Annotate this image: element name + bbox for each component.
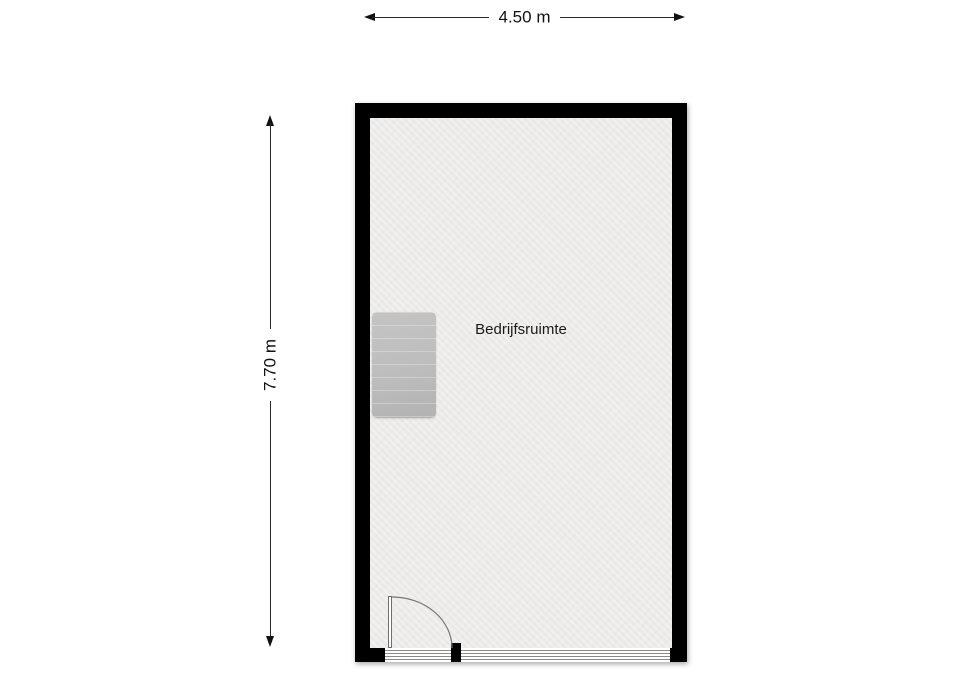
- arrow-right-icon: [674, 13, 685, 21]
- window-mullion-post: [451, 643, 461, 662]
- height-dimension-label: 7.70 m: [261, 329, 280, 401]
- room-label: Bedrijfsruimte: [370, 321, 672, 338]
- arrow-down-icon: [266, 636, 274, 647]
- width-dimension: 4.50 m: [364, 10, 685, 25]
- glass-front-window: [460, 648, 670, 662]
- width-dimension-label: 4.50 m: [489, 8, 561, 27]
- door-leaf: [388, 596, 392, 648]
- door-threshold: [385, 648, 452, 662]
- height-dimension: 7.70 m: [263, 115, 278, 647]
- floor-plan-canvas: 4.50 m 7.70 m Bedrijfsruimte: [0, 0, 960, 679]
- floor-plan: Bedrijfsruimte: [355, 103, 687, 662]
